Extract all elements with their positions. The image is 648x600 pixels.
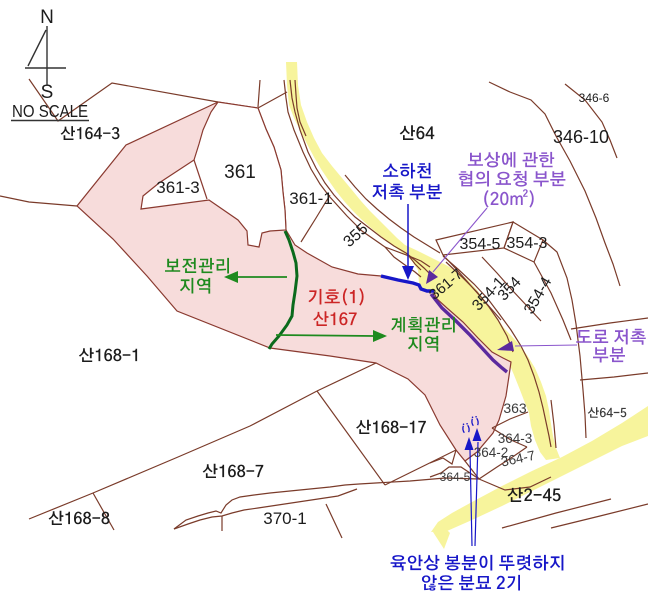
svg-text:NO SCALE: NO SCALE <box>12 101 88 121</box>
svg-text:361: 361 <box>224 162 256 183</box>
svg-text:361-1: 361-1 <box>289 189 332 208</box>
svg-text:364-5: 364-5 <box>440 470 471 484</box>
svg-text:346-10: 346-10 <box>553 127 609 147</box>
svg-text:361-3: 361-3 <box>156 178 199 197</box>
svg-text:354-3: 354-3 <box>507 235 548 252</box>
svg-text:N: N <box>40 7 54 28</box>
svg-text:364-3: 364-3 <box>498 431 533 446</box>
svg-text:S: S <box>41 82 54 103</box>
svg-text:363: 363 <box>503 400 527 416</box>
svg-text:370-1: 370-1 <box>263 509 306 528</box>
svg-text:354-5: 354-5 <box>460 236 501 253</box>
svg-text:346-6: 346-6 <box>579 91 610 105</box>
